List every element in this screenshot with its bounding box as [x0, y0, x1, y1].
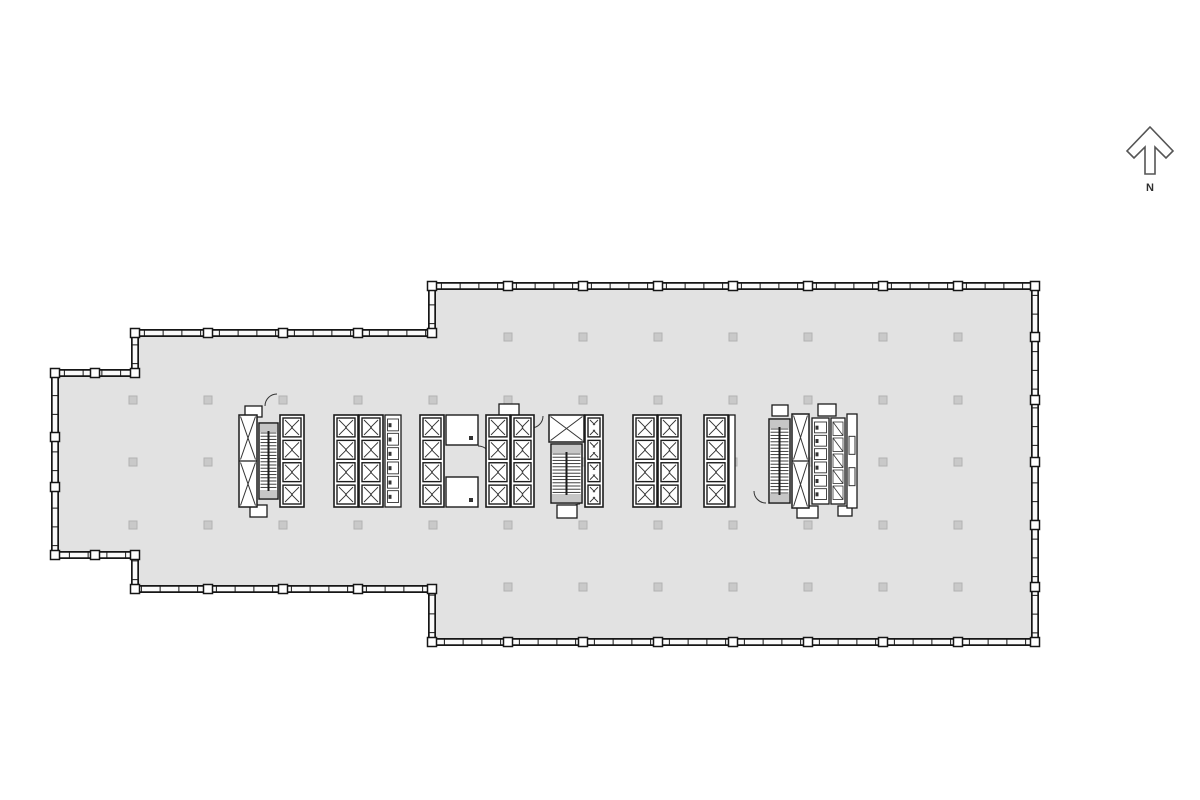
wall-column-square [354, 329, 363, 338]
column-marker [879, 333, 887, 341]
door-vestibule [818, 404, 836, 416]
column-marker [204, 521, 212, 529]
stair-restroom-core-east [769, 404, 857, 518]
wall-column-square [804, 282, 813, 291]
door-vestibule [557, 505, 577, 518]
core-room [446, 477, 478, 507]
wall-column-square [131, 551, 140, 560]
column-marker [729, 333, 737, 341]
wall-column-square [654, 282, 663, 291]
north-arrow-icon [1127, 127, 1173, 174]
stairwell [259, 423, 278, 499]
wall-column-square [51, 369, 60, 378]
column-marker [729, 396, 737, 404]
wall-column-square [204, 585, 213, 594]
stair-machine-core-center [549, 415, 603, 518]
column-marker [579, 583, 587, 591]
floor-plan-canvas: N [0, 0, 1200, 800]
shaft [792, 414, 809, 508]
wall-column-square [131, 369, 140, 378]
wall-column-square [279, 585, 288, 594]
door-vestibule [772, 405, 788, 416]
wall-column-square [1031, 521, 1040, 530]
wall-column-square [879, 638, 888, 647]
column-marker [804, 333, 812, 341]
column-marker [354, 521, 362, 529]
wall-column-square [51, 551, 60, 560]
elevator-bank [334, 415, 358, 507]
column-marker [279, 396, 287, 404]
column-marker [504, 396, 512, 404]
column-marker [504, 333, 512, 341]
column-marker [729, 583, 737, 591]
column-marker [879, 583, 887, 591]
column-marker [429, 396, 437, 404]
elevator-bank [511, 415, 534, 507]
north-arrow: N [1127, 127, 1173, 194]
wall-column-square [51, 433, 60, 442]
column-marker [129, 458, 137, 466]
wall-column-square [1031, 458, 1040, 467]
column-marker [204, 396, 212, 404]
wall-column-square [428, 329, 437, 338]
column-marker [504, 521, 512, 529]
column-marker [204, 458, 212, 466]
plan-root [51, 282, 1040, 647]
elevator-bank [704, 415, 728, 507]
restroom-fixtures [385, 415, 401, 507]
column-marker [579, 521, 587, 529]
column-marker [879, 521, 887, 529]
wall-column-square [1031, 282, 1040, 291]
column-marker [429, 521, 437, 529]
column-marker [654, 396, 662, 404]
north-label: N [1146, 182, 1154, 194]
column-marker [879, 396, 887, 404]
column-marker [954, 521, 962, 529]
wall-column-square [1031, 396, 1040, 405]
elevator-bank [420, 415, 444, 507]
column-marker [729, 521, 737, 529]
core-room [446, 415, 478, 445]
wall-column-square [354, 585, 363, 594]
stairwell [551, 444, 582, 503]
column-marker [129, 396, 137, 404]
wall-column-square [729, 638, 738, 647]
restroom-fixtures [812, 418, 829, 504]
elevator-bank [658, 415, 681, 507]
wall-column-square [91, 551, 100, 560]
wall-column-square [804, 638, 813, 647]
wall-column-square [579, 282, 588, 291]
column-marker [579, 333, 587, 341]
wall-column-square [279, 329, 288, 338]
column-marker [354, 396, 362, 404]
elevator-bank [486, 415, 510, 507]
wall-column-square [1031, 638, 1040, 647]
wall-column-square [428, 585, 437, 594]
column-marker [279, 521, 287, 529]
column-marker [879, 458, 887, 466]
wall-column-square [131, 585, 140, 594]
wall-column-square [428, 638, 437, 647]
shaft [239, 415, 257, 507]
wall-column-square [879, 282, 888, 291]
column-marker [954, 583, 962, 591]
column-marker [654, 583, 662, 591]
restroom-stalls [831, 418, 845, 504]
elevator-bank [585, 415, 603, 507]
elevator-bank-single [704, 415, 735, 507]
column-marker [654, 521, 662, 529]
wall-column-square [204, 329, 213, 338]
column-marker [954, 333, 962, 341]
elevator-bank-center-west [486, 404, 534, 507]
shaft [549, 415, 584, 442]
wall-column-square [654, 638, 663, 647]
floor-plan-drawing: N [0, 0, 1200, 800]
elevator-bank-center-east [633, 415, 681, 507]
service-strip [847, 414, 857, 508]
column-marker [804, 583, 812, 591]
elevator-bank [633, 415, 657, 507]
column-marker [504, 583, 512, 591]
elevator-bank [359, 415, 383, 507]
column-marker [129, 521, 137, 529]
wall-column-square [131, 329, 140, 338]
wall-column-square [504, 282, 513, 291]
wall-column-square [729, 282, 738, 291]
column-marker [804, 396, 812, 404]
wall-column-square [1031, 333, 1040, 342]
elevator-bank [280, 415, 304, 507]
wall-column-square [91, 369, 100, 378]
wall-column-square [428, 282, 437, 291]
wall-column-square [954, 638, 963, 647]
column-marker [654, 333, 662, 341]
wall-column-square [504, 638, 513, 647]
service-strip [729, 415, 735, 507]
column-marker [954, 396, 962, 404]
wall-column-square [954, 282, 963, 291]
wall-column-square [579, 638, 588, 647]
wall-column-square [51, 483, 60, 492]
column-marker [804, 521, 812, 529]
wall-column-square [1031, 583, 1040, 592]
stairwell [769, 419, 790, 503]
column-marker [954, 458, 962, 466]
column-marker [579, 396, 587, 404]
